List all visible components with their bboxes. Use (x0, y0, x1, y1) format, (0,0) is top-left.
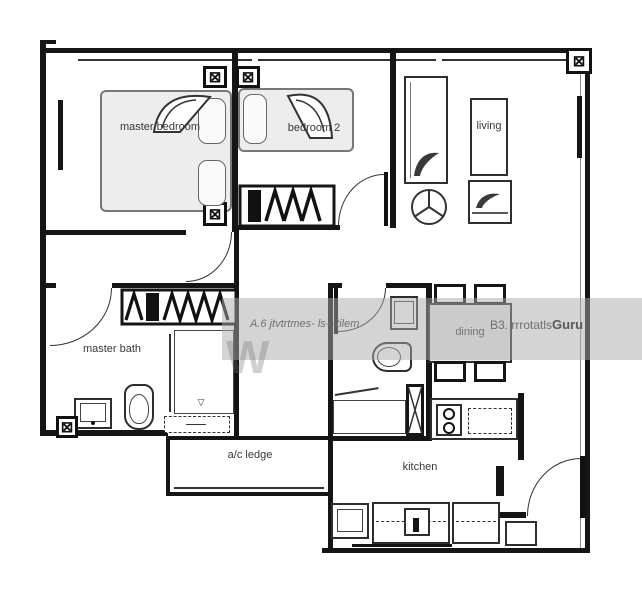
door-leaf-bath2 (334, 288, 338, 334)
room-label-living: living (450, 120, 528, 134)
ledge-inner-line (174, 487, 324, 489)
tv-console (470, 98, 508, 176)
wall-segment (46, 230, 186, 235)
shower-screen (335, 387, 379, 396)
counter-dash-line (456, 521, 496, 522)
armchair-inner-line (472, 212, 508, 214)
duct-shaft-icon (406, 384, 424, 436)
door-leaf-bedroom2 (384, 172, 388, 226)
wall-stub (496, 466, 504, 496)
grille-glyph: ⊠ (242, 70, 255, 85)
leaf-icon (409, 146, 443, 180)
grille-glyph: ⊠ (209, 207, 222, 222)
appliance-mark (413, 518, 419, 532)
pillow (243, 94, 267, 144)
room-label-master-bedroom: master bedroom (118, 121, 202, 135)
room-label-ac-ledge: a/c ledge (226, 449, 274, 463)
wall-segment (234, 230, 239, 436)
wall-segment (40, 48, 590, 53)
window-grille-icon: ⊠ (236, 66, 260, 88)
window-glazing-line (78, 59, 252, 61)
room-label-kitchen: kitchen (382, 461, 458, 475)
shoe-cabinet (505, 521, 537, 546)
grille-glyph: ⊠ (209, 70, 222, 85)
burner-icon (443, 422, 455, 434)
window-bar (58, 100, 63, 170)
dining-chair (474, 284, 506, 305)
window-glazing-line (258, 59, 436, 61)
bath-sink-basin (80, 403, 106, 422)
window-glazing-line (442, 59, 582, 61)
toilet-bowl (129, 394, 149, 424)
wall-segment (322, 548, 589, 553)
shower (333, 400, 406, 434)
leaf-icon (473, 189, 503, 211)
dining-chair (434, 284, 466, 305)
room-label-dining: dining (432, 326, 508, 340)
burner-icon (443, 408, 455, 420)
wall-segment (40, 40, 46, 436)
door-arc-master-bedroom (186, 232, 232, 282)
door-arc-bedroom2 (338, 174, 384, 226)
window-grille-icon: ⊠ (56, 416, 78, 438)
dining-chair (434, 361, 466, 382)
corner-column-icon: ⊠ (566, 48, 592, 74)
bath2-sink-basin (394, 301, 414, 324)
door-arc-bath2 (338, 288, 386, 332)
window-grille-icon: ⊠ (203, 66, 227, 88)
watermark-text-right: B3. rrrotatlsGuru (490, 317, 640, 332)
room-label-master-bath: master bath (80, 343, 144, 357)
counter-dashed (468, 408, 512, 434)
pillow (198, 160, 226, 206)
wall-segment (518, 393, 524, 460)
window-bar (577, 96, 582, 158)
wall-segment (585, 48, 590, 553)
sink-drain-dot (91, 421, 95, 425)
wall-segment (390, 48, 396, 228)
dining-chair (474, 361, 506, 382)
room-label-bedroom2: bedroom 2 (268, 122, 360, 136)
toilet-bowl (377, 347, 401, 367)
wardrobe-hangers-icon (238, 184, 336, 228)
wall-segment (498, 512, 526, 518)
shower-drain-icon: ▽ (194, 397, 208, 408)
counter-edge-line (352, 544, 452, 547)
counter-right (452, 502, 500, 544)
wall-segment (328, 436, 432, 441)
shower-screen (169, 334, 171, 412)
grille-glyph: ⊠ (61, 420, 74, 435)
door-arc-master-bath (50, 288, 112, 346)
watermark-brand: Guru (552, 317, 583, 332)
column-glyph: ⊠ (573, 54, 586, 69)
vanity-dash-mark (186, 424, 206, 425)
wardrobe-hangers-icon (120, 288, 238, 326)
ceiling-fan-icon (408, 186, 450, 228)
door-arc-entrance (527, 458, 581, 516)
door-leaf-entrance (580, 456, 585, 518)
kitchen-sink-basin (337, 509, 363, 532)
floor-plan: ⊠ ⊠ ⊠ ⊠ ⊠ (0, 0, 642, 600)
